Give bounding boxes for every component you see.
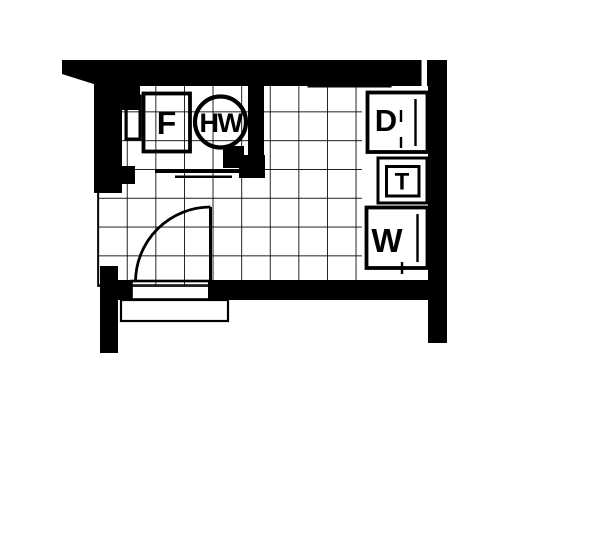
exterior-step xyxy=(121,300,228,321)
right-wall xyxy=(428,60,447,343)
left-wall-lower xyxy=(100,266,118,353)
water-heater-connector xyxy=(223,146,244,168)
wall-joint-slit xyxy=(422,58,428,88)
floor-plan-canvas: F HW D T W xyxy=(0,0,600,551)
bottom-wall xyxy=(208,280,447,300)
shelf-line-2 xyxy=(175,176,232,179)
water-heater-label: HW xyxy=(200,108,244,138)
floor-plan: F HW D T W xyxy=(0,0,600,551)
washer-label: W xyxy=(371,222,403,259)
shelf-line-1 xyxy=(155,169,239,173)
partition-stub xyxy=(248,84,264,158)
bottom-wall-stub xyxy=(118,280,132,300)
left-wall-notch xyxy=(120,166,135,184)
freezer-label: F xyxy=(157,105,177,141)
dryer-label: D xyxy=(375,103,397,138)
laundry-tub-label: T xyxy=(395,169,410,196)
window-mullion xyxy=(309,73,390,77)
